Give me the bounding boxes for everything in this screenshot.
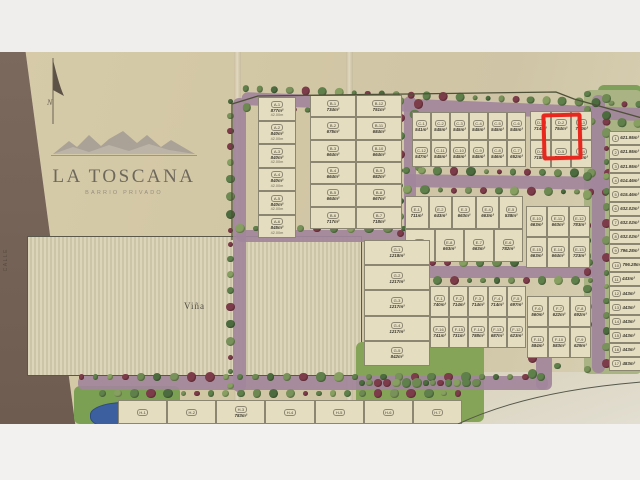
tree-icon bbox=[451, 187, 457, 193]
tree-icon bbox=[622, 101, 628, 107]
tree-icon bbox=[187, 372, 196, 381]
lot-area: 614.46m² bbox=[620, 178, 639, 184]
lot-area: 664m² bbox=[373, 152, 386, 158]
north-label: N bbox=[47, 98, 52, 107]
tree-icon bbox=[554, 169, 562, 177]
lot-area: 632.02m² bbox=[620, 234, 639, 240]
tree-icon bbox=[299, 373, 308, 382]
tree-icon bbox=[402, 378, 411, 387]
lot-area: 714m² bbox=[472, 302, 485, 308]
lot-label: F-15 bbox=[452, 326, 465, 333]
tree-icon bbox=[508, 277, 515, 284]
lot-label: E-1 bbox=[411, 206, 422, 213]
lot-area: 842m² bbox=[391, 354, 404, 360]
lot-area: 697m² bbox=[510, 302, 523, 308]
lot: F-5697m² bbox=[507, 286, 526, 317]
lot-label: F-1 bbox=[434, 295, 445, 302]
tree-icon bbox=[462, 379, 470, 387]
lot-label: F-12 bbox=[510, 326, 523, 333]
tree-icon bbox=[227, 113, 233, 119]
lot: G-5842m² bbox=[364, 341, 430, 366]
lot-label: A-6 bbox=[271, 218, 282, 225]
lot: E-5538m² bbox=[499, 196, 523, 229]
lot: B-6717m² bbox=[310, 207, 356, 229]
lot: E-4663m² bbox=[476, 196, 500, 229]
lot-area: 632.02m² bbox=[620, 206, 639, 212]
lot: H-6 bbox=[364, 400, 413, 424]
mountains-logo-icon bbox=[49, 128, 199, 160]
lot-area: 782m² bbox=[502, 246, 515, 252]
tree-icon bbox=[583, 172, 592, 181]
tree-icon bbox=[222, 390, 229, 397]
tree-icon bbox=[79, 374, 84, 379]
lot: B-4664m² bbox=[310, 162, 356, 184]
lot-area: 663m² bbox=[530, 253, 543, 259]
lot-block-F: F-1740m²F-2714m²F-3714m²F-4714m²F-5697m²… bbox=[430, 286, 526, 348]
lot-label: B-7 bbox=[373, 212, 384, 219]
lot: B-11684m² bbox=[356, 117, 402, 139]
lot-area: 583m² bbox=[553, 343, 566, 349]
tree-icon bbox=[528, 369, 538, 379]
lot-area: 682m² bbox=[373, 174, 386, 180]
tree-icon bbox=[334, 372, 344, 382]
lot: E-14664m² bbox=[547, 237, 568, 268]
lot: B-8667m² bbox=[356, 184, 402, 206]
lot-area: 545m² bbox=[510, 127, 523, 133]
lot-label: E-12 bbox=[573, 215, 586, 222]
lot-area: 788m² bbox=[472, 333, 485, 339]
lot: F-1740m² bbox=[430, 286, 449, 317]
vineyard-area: Viña bbox=[27, 236, 362, 376]
lot-label: B-2 bbox=[327, 122, 338, 129]
tree-icon bbox=[524, 169, 531, 176]
lot-label: C-4 bbox=[473, 120, 484, 127]
tree-icon bbox=[163, 389, 173, 399]
tree-icon bbox=[583, 285, 592, 294]
lot-label: 7 bbox=[612, 219, 619, 226]
lot-area: 1218m² bbox=[389, 253, 404, 259]
lot-label: F-14 bbox=[471, 326, 484, 333]
tree-icon bbox=[484, 169, 489, 174]
lot-label: H-6 bbox=[383, 409, 394, 416]
lot-area: 796.28m² bbox=[622, 262, 640, 268]
lot-label: A-2 bbox=[271, 124, 282, 131]
lot: A-1877m²42.00m bbox=[258, 97, 296, 121]
lot: E-12783m² bbox=[569, 206, 590, 237]
lot: H-1 bbox=[118, 400, 167, 424]
lot-area: 629m² bbox=[574, 343, 587, 349]
lot: E-7663m² bbox=[464, 229, 494, 262]
lot-label: H-7 bbox=[432, 409, 443, 416]
lot-area: 663m² bbox=[443, 246, 456, 252]
lot: E-13723m² bbox=[569, 237, 590, 268]
lot-label: E-15 bbox=[530, 246, 543, 253]
lot-area: 663m² bbox=[481, 213, 494, 219]
lot-label: B-1 bbox=[327, 100, 338, 107]
lot-label: H-2 bbox=[186, 409, 197, 416]
tree-icon bbox=[226, 192, 235, 201]
lot-area: 621.95m² bbox=[620, 164, 639, 170]
tree-icon bbox=[537, 373, 545, 381]
tree-icon bbox=[438, 187, 443, 192]
tree-icon bbox=[571, 276, 581, 286]
lot-area: 545m² bbox=[434, 127, 447, 133]
lot-area: 796.28m² bbox=[620, 248, 639, 254]
lot-label: E-13 bbox=[573, 246, 586, 253]
tree-icon bbox=[374, 379, 381, 386]
lot: 7632.02m² bbox=[609, 216, 640, 230]
lot: B-12751m² bbox=[356, 95, 402, 117]
lot-label: B-5 bbox=[327, 189, 338, 196]
lot-area: 664m² bbox=[327, 152, 340, 158]
tree-icon bbox=[591, 98, 601, 108]
lot-label: F-13 bbox=[491, 326, 504, 333]
tree-icon bbox=[450, 276, 460, 286]
tree-icon bbox=[130, 389, 139, 398]
logo-block: LA TOSCANA BARRIO PRIVADO bbox=[44, 128, 204, 196]
lot: A-6845m²42.00m bbox=[258, 215, 296, 239]
tree-icon bbox=[114, 390, 122, 398]
lot-area: 545m² bbox=[472, 127, 485, 133]
lot-area: 443m² bbox=[622, 291, 635, 297]
lot-label: 2 bbox=[612, 149, 619, 156]
tree-icon bbox=[512, 96, 519, 103]
lot-block-G: G-11218m²G-21217m²G-31217m²G-41217m²G-58… bbox=[364, 240, 430, 366]
lot: H-2 bbox=[167, 400, 216, 424]
lot-area: 615.46m² bbox=[620, 192, 639, 198]
lot-label: E-11 bbox=[551, 215, 564, 222]
tree-icon bbox=[170, 373, 179, 382]
lot: 2621.95m² bbox=[609, 145, 640, 159]
tree-icon bbox=[227, 383, 233, 389]
lot: 3621.95m² bbox=[609, 159, 640, 173]
lot-label: C-6 bbox=[511, 120, 522, 127]
tree-icon bbox=[137, 373, 145, 381]
tree-icon bbox=[480, 278, 486, 284]
lot-area: 545m² bbox=[434, 154, 447, 160]
lot-label: A-1 bbox=[271, 101, 282, 108]
lot: F-7622m² bbox=[548, 296, 569, 327]
tree-icon bbox=[584, 91, 590, 97]
tree-icon bbox=[602, 111, 611, 120]
tree-icon bbox=[227, 143, 234, 150]
lot: B-5664m² bbox=[310, 184, 356, 206]
lot-label: C-7 bbox=[511, 147, 522, 154]
tree-icon bbox=[283, 373, 291, 381]
lot-dimension: 42.00m bbox=[271, 207, 284, 211]
tree-icon bbox=[554, 276, 563, 285]
tree-icon bbox=[227, 159, 235, 167]
lot-area: 731m² bbox=[452, 333, 465, 339]
tree-icon bbox=[122, 374, 129, 381]
tree-icon bbox=[423, 92, 432, 101]
lot-label: B-6 bbox=[327, 212, 338, 219]
lot-label: H-4 bbox=[284, 409, 295, 416]
lot-area: 734m² bbox=[327, 107, 340, 113]
lot: B-10664m² bbox=[356, 140, 402, 162]
lot-label: 12 bbox=[612, 290, 621, 297]
lot: H-7 bbox=[413, 400, 462, 424]
lot-label: B-9 bbox=[373, 167, 384, 174]
tree-icon bbox=[392, 379, 401, 388]
lot: F-12623m² bbox=[507, 317, 526, 348]
lot-area: 783m² bbox=[573, 222, 586, 228]
tree-icon bbox=[498, 96, 504, 102]
tree-icon bbox=[561, 189, 566, 194]
lot-area: 741m² bbox=[433, 333, 446, 339]
tree-icon bbox=[226, 337, 235, 346]
tree-icon bbox=[544, 187, 554, 197]
lot-dimension: 42.00m bbox=[271, 113, 284, 117]
lot: 16443m² bbox=[609, 343, 640, 357]
tree-icon bbox=[316, 372, 325, 381]
lot: H-5 bbox=[315, 400, 364, 424]
lot-label: B-10 bbox=[372, 145, 385, 152]
lot-label: C-12 bbox=[415, 147, 429, 154]
lot-label: 11 bbox=[612, 276, 621, 283]
lot-area: 740m² bbox=[433, 302, 446, 308]
lot-label: A-4 bbox=[271, 171, 282, 178]
lot-label: B-8 bbox=[373, 189, 384, 196]
tree-icon bbox=[181, 391, 186, 396]
lot-label: E-10 bbox=[530, 215, 543, 222]
tree-icon bbox=[253, 389, 261, 397]
lot-area: 1217m² bbox=[389, 329, 404, 335]
tree-icon bbox=[433, 276, 442, 285]
lot-area: 545m² bbox=[472, 154, 485, 160]
tree-icon bbox=[352, 374, 357, 379]
lot-label: G-2 bbox=[391, 272, 403, 279]
lot-area: 664m² bbox=[327, 196, 340, 202]
lot: H-3783m² bbox=[216, 400, 265, 424]
tree-icon bbox=[433, 167, 441, 175]
lot: C-8546m² bbox=[488, 140, 507, 168]
lot-label: E-3 bbox=[458, 206, 469, 213]
tree-icon bbox=[423, 380, 428, 385]
lot-label: F-9 bbox=[575, 336, 586, 343]
lot-area: 443m² bbox=[622, 347, 635, 353]
lot-area: 718m² bbox=[373, 219, 386, 225]
lot: C-12547m² bbox=[412, 140, 431, 168]
tree-icon bbox=[558, 97, 567, 106]
development-title: LA TOSCANA bbox=[44, 166, 204, 188]
tree-icon bbox=[583, 190, 593, 200]
lot-area: 1217m² bbox=[389, 279, 404, 285]
tree-icon bbox=[538, 276, 546, 284]
tree-icon bbox=[602, 94, 611, 103]
lot-area: 623m² bbox=[510, 333, 523, 339]
lot-block-E2: E-10663m²E-11663m²E-12783m²E-15663m²E-14… bbox=[526, 206, 590, 268]
lot: G-41217m² bbox=[364, 316, 430, 341]
lot-block-B: B-1734m²B-2675m²B-3664m²B-4664m²B-5664m²… bbox=[310, 95, 402, 229]
vineyard-label: Viña bbox=[184, 301, 205, 311]
tree-icon bbox=[542, 96, 550, 104]
tree-icon bbox=[420, 185, 430, 195]
lot-area: 546m² bbox=[491, 154, 504, 160]
tree-icon bbox=[554, 363, 560, 369]
tree-icon bbox=[472, 95, 477, 100]
lot: C-9545m² bbox=[469, 140, 488, 168]
lot: C-6545m² bbox=[507, 112, 526, 140]
tree-icon bbox=[228, 228, 233, 233]
lot: 11443m² bbox=[609, 272, 640, 286]
lot-label: C-9 bbox=[473, 147, 484, 154]
tree-icon bbox=[574, 189, 580, 195]
lot: 5615.46m² bbox=[609, 187, 640, 201]
lot-area: 483m² bbox=[622, 361, 635, 367]
tree-icon bbox=[227, 287, 235, 295]
tree-icon bbox=[99, 390, 106, 397]
lot: F-16741m² bbox=[430, 317, 449, 348]
lot-label: E-14 bbox=[551, 246, 564, 253]
lot: E-8663m² bbox=[435, 229, 465, 262]
tree-row bbox=[226, 100, 235, 388]
lot-label: B-3 bbox=[327, 145, 338, 152]
tree-icon bbox=[584, 366, 591, 373]
lot-label: 9 bbox=[612, 247, 619, 254]
lot-label: 8 bbox=[612, 233, 619, 240]
lot-label: G-1 bbox=[391, 246, 403, 253]
lot-label: 17 bbox=[612, 360, 621, 367]
lot-area: 717m² bbox=[327, 219, 340, 225]
lot: F-2714m² bbox=[449, 286, 468, 317]
tree-icon bbox=[403, 185, 412, 194]
tree-icon bbox=[539, 169, 546, 176]
lot-area: 652m² bbox=[510, 154, 523, 160]
tree-icon bbox=[467, 278, 472, 283]
lot-label: F-7 bbox=[553, 305, 564, 312]
lot: E-2643m² bbox=[429, 196, 453, 229]
tree-icon bbox=[286, 86, 294, 94]
lot-label: C-5 bbox=[492, 120, 503, 127]
lot-label: F-3 bbox=[473, 295, 484, 302]
lot-label: C-10 bbox=[453, 147, 467, 154]
lot-label: B-12 bbox=[372, 100, 385, 107]
tree-icon bbox=[237, 390, 245, 398]
tree-icon bbox=[507, 374, 513, 380]
tree-icon bbox=[414, 99, 424, 109]
lot-area: 584m² bbox=[531, 343, 544, 349]
tree-icon bbox=[527, 187, 536, 196]
tree-icon bbox=[383, 379, 391, 387]
tree-icon bbox=[588, 278, 593, 283]
lot-label: C-11 bbox=[434, 147, 447, 154]
lot: B-9682m² bbox=[356, 162, 402, 184]
tree-icon bbox=[437, 380, 444, 387]
tree-icon bbox=[316, 391, 322, 397]
lot-label: F-8 bbox=[575, 305, 586, 312]
lot-label: A-3 bbox=[271, 148, 282, 155]
lot-area: 621.95m² bbox=[620, 135, 639, 141]
tree-icon bbox=[472, 379, 481, 388]
tree-icon bbox=[418, 167, 426, 175]
lot-label: 6 bbox=[612, 205, 619, 212]
lot-label: 1 bbox=[612, 135, 619, 142]
tree-icon bbox=[205, 372, 215, 382]
lot-label: E-2 bbox=[435, 206, 446, 213]
tree-icon bbox=[271, 86, 279, 94]
lot: C-7652m² bbox=[507, 140, 526, 168]
lot: G-21217m² bbox=[364, 265, 430, 290]
lot: A-3840m²42.00m bbox=[258, 144, 296, 168]
lot-area: 545m² bbox=[491, 127, 504, 133]
lot-label: F-4 bbox=[492, 295, 503, 302]
lot: B-1734m² bbox=[310, 95, 356, 117]
lot-block-A: A-1877m²42.00mA-2840m²42.00mA-3840m²42.0… bbox=[258, 97, 296, 238]
lot: F-15731m² bbox=[449, 317, 468, 348]
lot-area: 443m² bbox=[622, 333, 635, 339]
tree-icon bbox=[330, 390, 336, 396]
lot-area: 443m² bbox=[622, 276, 635, 282]
lot-area: 443m² bbox=[622, 319, 635, 325]
tree-icon bbox=[252, 374, 259, 381]
tree-icon bbox=[445, 379, 452, 386]
lot-area: 675m² bbox=[327, 129, 340, 135]
lot-label: E-7 bbox=[473, 239, 484, 246]
tree-icon bbox=[226, 303, 234, 311]
lot-area: 560m² bbox=[531, 312, 544, 318]
lot: E-1711m² bbox=[405, 196, 429, 229]
lot-label: F-5 bbox=[511, 295, 522, 302]
lot: E-10663m² bbox=[526, 206, 547, 237]
lot: E-6782m² bbox=[494, 229, 524, 262]
lot-area: 714m² bbox=[452, 302, 465, 308]
lot: F-4714m² bbox=[488, 286, 507, 317]
lot-label: E-6 bbox=[503, 239, 514, 246]
tree-icon bbox=[449, 167, 458, 176]
lot: F-3714m² bbox=[468, 286, 487, 317]
tree-icon bbox=[412, 378, 422, 388]
tree-icon bbox=[227, 128, 234, 135]
lot-area: 687m² bbox=[491, 333, 504, 339]
lot-label: 10 bbox=[612, 262, 621, 269]
tree-icon bbox=[366, 380, 373, 387]
lot-label: F-16 bbox=[433, 326, 446, 333]
lot-dimension: 42.00m bbox=[271, 184, 284, 188]
highlight-box bbox=[541, 112, 582, 160]
lot: 17483m² bbox=[609, 357, 640, 371]
lot-label: H-3 bbox=[235, 406, 246, 413]
lot: A-4840m²42.00m bbox=[258, 168, 296, 192]
lot: F-13687m² bbox=[488, 317, 507, 348]
lot: C-4545m² bbox=[469, 112, 488, 140]
lot-label: C-3 bbox=[454, 120, 465, 127]
lot-area: 664m² bbox=[327, 174, 340, 180]
lot: B-7718m² bbox=[356, 207, 402, 229]
lot-area: 711m² bbox=[411, 213, 423, 219]
lot-area: 545m² bbox=[453, 154, 466, 160]
lot: A-2840m²42.00m bbox=[258, 121, 296, 145]
lot: C-1541m² bbox=[412, 112, 431, 140]
tree-row bbox=[402, 276, 592, 285]
lot-block-H: H-1H-2H-3783m²H-4H-5H-6H-7 bbox=[118, 400, 462, 424]
tree-icon bbox=[496, 169, 502, 175]
lot: 8632.02m² bbox=[609, 230, 640, 244]
lot-label: A-5 bbox=[271, 195, 282, 202]
tree-icon bbox=[301, 87, 310, 96]
tree-icon bbox=[227, 271, 234, 278]
lot: 9796.28m² bbox=[609, 244, 640, 258]
tree-icon bbox=[510, 187, 519, 196]
tree-icon bbox=[256, 86, 263, 93]
lot-area: 547m² bbox=[415, 154, 428, 160]
tree-icon bbox=[523, 277, 531, 285]
tree-icon bbox=[527, 96, 535, 104]
tree-icon bbox=[243, 103, 252, 112]
lot-label: E-4 bbox=[482, 206, 493, 213]
lot-label: 5 bbox=[612, 191, 619, 198]
tree-icon bbox=[227, 256, 233, 262]
